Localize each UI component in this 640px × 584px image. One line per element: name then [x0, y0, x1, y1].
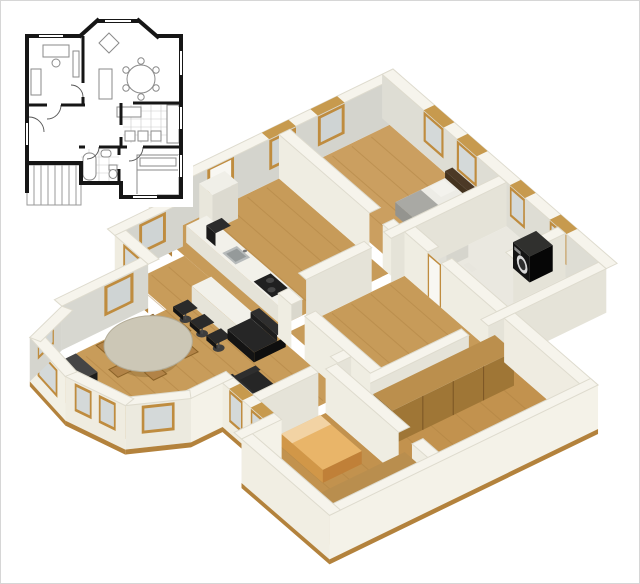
inset-bookshelf: [73, 51, 79, 77]
inset-dining-chair: [138, 58, 144, 64]
architectural-visualization: [1, 1, 640, 584]
inset-bed-pillow: [140, 158, 176, 166]
inset-dining-chair: [153, 85, 159, 91]
inset-stove: [138, 131, 148, 141]
window-glass: [144, 405, 172, 430]
floor-plan-inset: [21, 7, 193, 207]
inset-dining-chair: [138, 94, 144, 100]
inset-living-sofa: [99, 69, 112, 99]
inset-dining-table: [127, 65, 155, 93]
inset-desk-chair: [52, 59, 60, 67]
screenshot-frame: [0, 0, 640, 584]
inset-counter: [167, 105, 179, 143]
inset-toilet-bowl: [109, 170, 117, 179]
inset-study-sofa: [31, 69, 41, 95]
inset-stove: [125, 131, 135, 141]
inset-dining-chair: [123, 67, 129, 73]
inset-dining-chair: [123, 85, 129, 91]
inset-desk: [43, 45, 69, 57]
inset-basin: [101, 150, 111, 157]
inset-dining-chair: [153, 67, 159, 73]
inset-stove: [151, 131, 161, 141]
